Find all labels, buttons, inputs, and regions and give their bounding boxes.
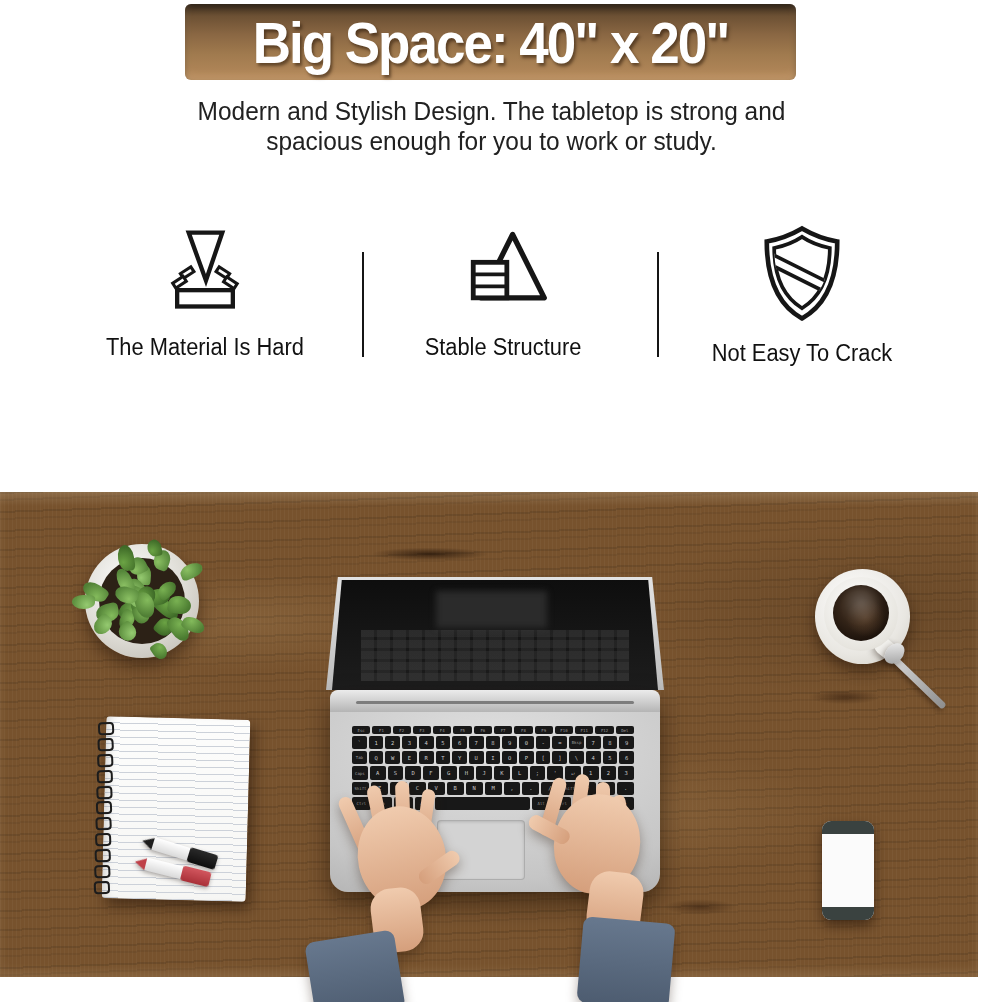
keyboard-key: S [388,766,404,779]
keyboard-key: F1 [372,726,390,734]
keyboard-key: ↑ [579,782,596,795]
keyboard-key: T [436,751,451,764]
keyboard-key: 1 [369,736,384,749]
keyboard-key: F5 [453,726,471,734]
keyboard-key: F10 [555,726,573,734]
keyboard-key: = [552,736,567,749]
feature-not-easy-crack: Not Easy To Crack [677,222,927,367]
keyboard-key: - [536,736,551,749]
keyboard-key: O [502,751,517,764]
keyboard-key: F8 [514,726,532,734]
banner-title: Big Space: 40" x 20" [253,8,729,75]
keyboard-key: F11 [575,726,593,734]
keyboard-key: 2 [601,766,617,779]
keyboard-key: U [469,751,484,764]
keyboard-key: P [519,751,534,764]
keyboard-key: ↓ [594,797,613,810]
keyboard-key: 0 [598,782,615,795]
screen-reflection-highlight [436,591,547,628]
spiral-ring [94,865,111,879]
desk-photo: EscF1F2F3F4F5F6F7F8F9F10F11F12Del`123456… [0,492,983,1002]
keyboard-key: ← [573,797,592,810]
feature-label: The Material Is Hard [86,334,324,361]
spiral-ring [97,754,114,768]
keyboard-key: 8 [486,736,501,749]
feature-label: Not Easy To Crack [683,340,921,367]
title-banner: Big Space: 40" x 20" [185,4,796,80]
keyboard-key: . [522,782,539,795]
keyboard-key: E [402,751,417,764]
keyboard-key: Z [371,782,388,795]
keyboard-key: F6 [474,726,492,734]
keyboard-key: Caps [352,766,368,779]
feature-label: Stable Structure [384,334,622,361]
keyboard-key: 7 [586,736,601,749]
keyboard-key: 9 [502,736,517,749]
keyboard-key: F [423,766,439,779]
spiral-ring [96,801,113,815]
spiral-ring [94,849,111,863]
keyboard-key: . [617,782,634,795]
keyboard-key: K [494,766,510,779]
spiral-ring [95,833,112,847]
keyboard-key: Bksp [569,736,584,749]
keyboard-key: Ctrl [553,797,572,810]
keyboard-key: F2 [393,726,411,734]
keyboard-key: H [459,766,475,779]
keyboard-key: ; [530,766,546,779]
shield-icon [754,222,850,324]
keyboard-key: A [370,766,386,779]
keyboard-key: , [504,782,521,795]
keyboard-key: Shift [560,782,577,795]
feature-stable-structure: Stable Structure [378,222,628,361]
keyboard-key: [ [536,751,551,764]
subtitle-line-1: Modern and Stylish Design. The tabletop … [29,96,953,126]
potted-plant [72,530,212,670]
keyboard-key: Alt [532,797,551,810]
keyboard-key: Fn [373,797,392,810]
keyboard-key: M [485,782,502,795]
keyboard-key: 4 [586,751,601,764]
keyboard-key: Q [369,751,384,764]
keyboard-key: F9 [535,726,553,734]
keyboard-key: 3 [402,736,417,749]
pyramid-stability-icon [455,222,551,318]
keyboard-key: 6 [619,751,634,764]
keyboard-key: L [512,766,528,779]
keyboard-key: / [541,782,558,795]
keyboard-key: → [615,797,634,810]
keyboard-key: \ [569,751,584,764]
plant-leaf [178,560,205,582]
keyboard-key [435,797,529,810]
spiral-ring [97,769,114,783]
spiral-ring [95,817,112,831]
keyboard-key: Win [394,797,413,810]
keyboard-key: F7 [494,726,512,734]
phone-top-band [822,821,874,834]
trackpad [437,820,525,880]
keyboard-key: ↵ [565,766,581,779]
keyboard-key: 1 [583,766,599,779]
laptop-lid [326,577,664,690]
screen-keyboard-reflection [361,630,628,682]
phone-bottom-band [822,907,874,920]
keyboard-key: C [409,782,426,795]
spiral-ring [94,881,111,895]
laptop-hinge [330,690,660,712]
coffee-steam [842,580,880,626]
keyboard-key: 5 [603,751,618,764]
keyboard-key: Alt [415,797,434,810]
feature-material-hard: The Material Is Hard [80,222,330,361]
keyboard-key: ] [552,751,567,764]
spiral-binding [94,722,114,894]
keyboard-key: N [466,782,483,795]
keyboard-key: Esc [352,726,370,734]
plant-leaf [146,538,163,557]
plant-leaf [166,594,192,616]
plant-leaf [72,595,95,610]
keyboard-key: R [419,751,434,764]
keyboard-key: Tab [352,751,367,764]
subtitle: Modern and Stylish Design. The tabletop … [29,96,953,156]
keyboard-key: 2 [385,736,400,749]
keyboard-key: 9 [619,736,634,749]
laptop-keyboard: EscF1F2F3F4F5F6F7F8F9F10F11F12Del`123456… [352,726,634,810]
plant-leaf [149,640,170,662]
feature-divider [362,252,364,357]
laptop-base: EscF1F2F3F4F5F6F7F8F9F10F11F12Del`123456… [330,690,660,892]
keyboard-key: W [385,751,400,764]
smartphone [822,821,874,920]
keyboard-key: D [405,766,421,779]
keyboard-key: 6 [452,736,467,749]
keyboard-key: ` [352,736,367,749]
spiral-ring [96,785,113,799]
feature-divider [657,252,659,357]
keyboard-key: Shift [352,782,369,795]
impact-hardness-icon [157,222,253,318]
keyboard-key: 4 [419,736,434,749]
spiral-ring [97,738,114,752]
spiral-ring [98,722,115,736]
keyboard-key: Del [616,726,634,734]
keyboard-key: I [486,751,501,764]
keyboard-key: 3 [618,766,634,779]
keyboard-key: B [447,782,464,795]
subtitle-line-2: spacious enough for you to work or study… [29,126,953,156]
keyboard-key: 7 [469,736,484,749]
keyboard-key: ' [547,766,563,779]
keyboard-key: V [428,782,445,795]
keyboard-key: J [476,766,492,779]
keyboard-key: 5 [436,736,451,749]
keyboard-key: G [441,766,457,779]
keyboard-key: F12 [595,726,613,734]
keyboard-key: Ctrl [352,797,371,810]
keyboard-key: F4 [433,726,451,734]
keyboard-key: 0 [519,736,534,749]
product-infographic: Big Space: 40" x 20" Modern and Stylish … [0,0,983,1002]
keyboard-key: 8 [603,736,618,749]
keyboard-key: X [390,782,407,795]
keyboard-key: Y [452,751,467,764]
keyboard-key: F3 [413,726,431,734]
laptop-screen [332,580,658,690]
